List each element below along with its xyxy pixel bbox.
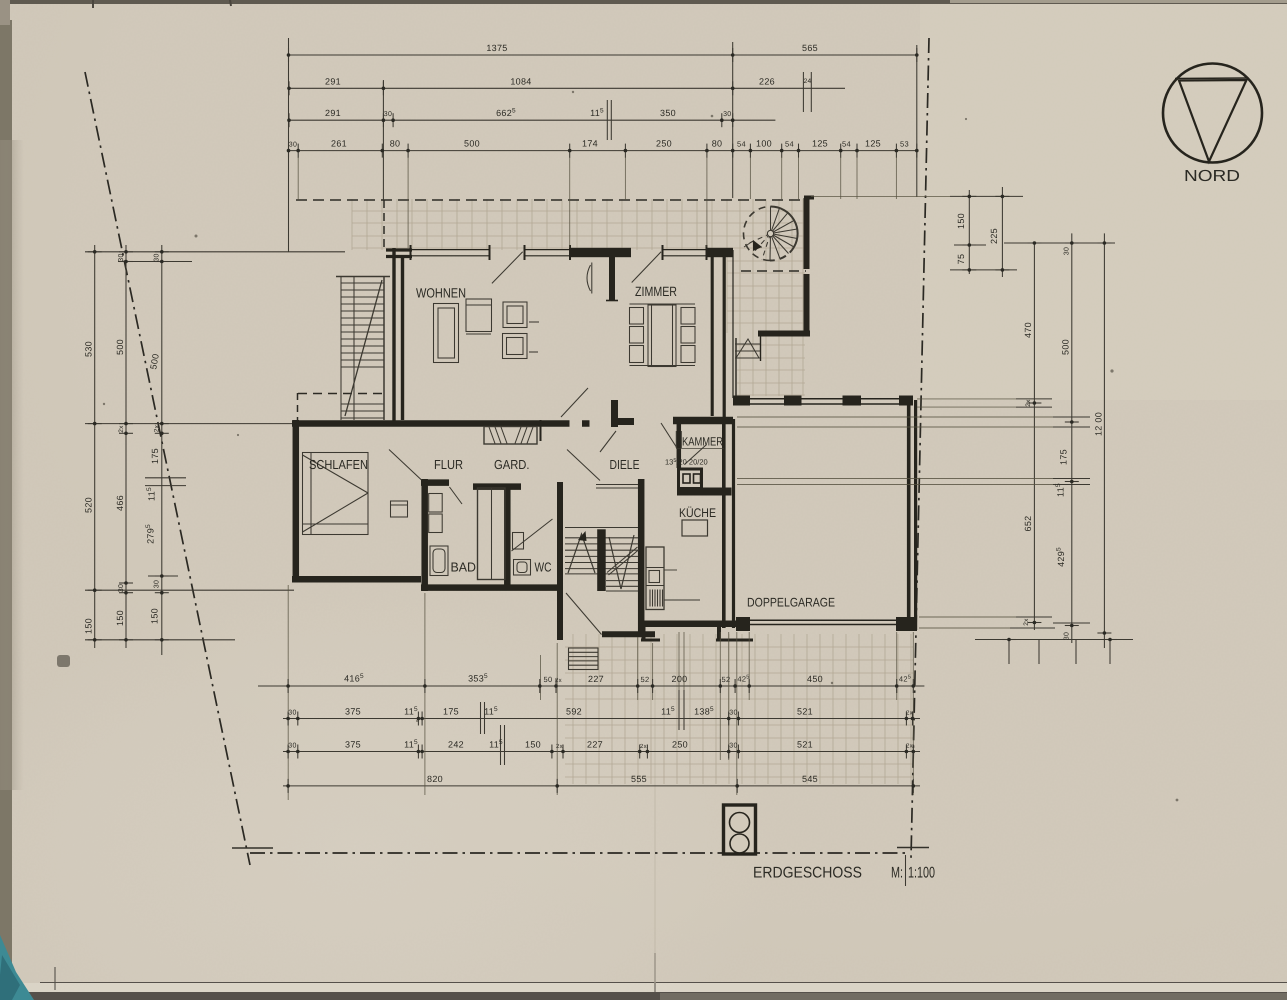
svg-text:1084: 1084 xyxy=(510,76,531,86)
svg-text:SCHLAFEN: SCHLAFEN xyxy=(309,457,368,472)
svg-text:500: 500 xyxy=(1061,339,1071,355)
svg-text:150: 150 xyxy=(150,608,160,624)
svg-text:WC: WC xyxy=(535,560,552,575)
svg-text:2x: 2x xyxy=(906,710,913,717)
svg-text:291: 291 xyxy=(325,76,341,86)
svg-text:2x: 2x xyxy=(154,424,161,432)
svg-text:24: 24 xyxy=(804,78,812,85)
svg-text:30: 30 xyxy=(154,580,161,588)
svg-text:30: 30 xyxy=(729,743,737,750)
svg-text:175: 175 xyxy=(1059,449,1069,465)
svg-text:500: 500 xyxy=(464,139,480,149)
svg-text:50: 50 xyxy=(544,675,553,684)
svg-text:30: 30 xyxy=(288,743,296,750)
svg-text:30: 30 xyxy=(723,111,731,118)
svg-text:12 00: 12 00 xyxy=(1093,412,1103,436)
svg-text:174: 174 xyxy=(582,139,598,149)
svg-text:545: 545 xyxy=(802,774,818,784)
svg-text:80: 80 xyxy=(390,139,401,149)
svg-text:75: 75 xyxy=(956,254,966,265)
svg-text:30: 30 xyxy=(118,584,125,592)
svg-text:242: 242 xyxy=(448,740,464,750)
svg-text:150: 150 xyxy=(956,213,966,229)
svg-text:30: 30 xyxy=(288,710,296,717)
svg-text:291: 291 xyxy=(325,108,341,118)
svg-text:521: 521 xyxy=(797,707,813,717)
svg-text:225: 225 xyxy=(989,228,999,244)
svg-text:53: 53 xyxy=(900,140,909,149)
svg-text:KÜCHE: KÜCHE xyxy=(679,506,716,520)
svg-text:150: 150 xyxy=(84,618,94,634)
svg-text:2x: 2x xyxy=(1023,618,1030,626)
svg-text:175: 175 xyxy=(443,707,459,717)
svg-text:52: 52 xyxy=(722,675,731,684)
svg-text:261: 261 xyxy=(331,139,347,149)
svg-text:652: 652 xyxy=(1023,516,1033,532)
svg-text:227: 227 xyxy=(587,740,603,750)
svg-text:WOHNEN: WOHNEN xyxy=(416,286,466,301)
svg-text:350: 350 xyxy=(660,108,676,118)
svg-text:592: 592 xyxy=(566,707,582,717)
svg-text:450: 450 xyxy=(807,674,823,684)
svg-text:250: 250 xyxy=(672,740,688,750)
svg-text:150: 150 xyxy=(525,740,541,750)
svg-text:FLUR: FLUR xyxy=(434,457,463,472)
svg-text:250: 250 xyxy=(656,139,672,149)
svg-text:1375: 1375 xyxy=(486,43,507,53)
svg-text:2x: 2x xyxy=(555,677,562,684)
svg-text:375: 375 xyxy=(345,740,361,750)
svg-text:30: 30 xyxy=(384,111,392,118)
svg-text:226: 226 xyxy=(759,76,775,86)
svg-text:2x: 2x xyxy=(118,425,125,433)
svg-text:2x: 2x xyxy=(1025,399,1032,407)
svg-text:125: 125 xyxy=(865,139,881,149)
svg-text:30: 30 xyxy=(154,253,161,261)
svg-text:530: 530 xyxy=(84,341,94,357)
svg-text:375: 375 xyxy=(345,707,361,717)
svg-text:52: 52 xyxy=(641,675,650,684)
svg-text:100: 100 xyxy=(756,139,772,149)
svg-text:470: 470 xyxy=(1023,322,1033,338)
svg-text:175: 175 xyxy=(150,448,160,464)
svg-text:M:: M: xyxy=(891,865,903,882)
svg-text:DIELE: DIELE xyxy=(610,457,640,472)
svg-text:520: 520 xyxy=(84,497,94,513)
svg-text:54: 54 xyxy=(737,140,746,149)
svg-text:30: 30 xyxy=(289,142,297,149)
svg-text:30: 30 xyxy=(118,253,125,261)
svg-text:150: 150 xyxy=(115,610,125,626)
svg-text:135/20 20/20: 135/20 20/20 xyxy=(665,458,708,467)
svg-text:30: 30 xyxy=(1064,247,1071,255)
svg-text:GARD.: GARD. xyxy=(494,457,530,472)
svg-text:54: 54 xyxy=(842,140,851,149)
svg-text:ERDGESCHOSS: ERDGESCHOSS xyxy=(753,865,862,882)
svg-text:ZIMMER: ZIMMER xyxy=(635,284,677,299)
svg-text:1:100: 1:100 xyxy=(908,865,935,882)
svg-text:125: 125 xyxy=(812,139,828,149)
svg-text:820: 820 xyxy=(427,774,443,784)
svg-text:NORD: NORD xyxy=(1184,168,1240,185)
svg-text:BAD: BAD xyxy=(451,560,477,575)
svg-text:30: 30 xyxy=(729,710,737,717)
svg-text:521: 521 xyxy=(797,740,813,750)
svg-text:565: 565 xyxy=(802,43,818,53)
svg-text:555: 555 xyxy=(631,774,647,784)
svg-text:500: 500 xyxy=(115,339,125,355)
svg-text:2x: 2x xyxy=(640,743,647,750)
svg-text:200: 200 xyxy=(672,674,688,684)
svg-text:2x: 2x xyxy=(556,743,563,750)
svg-text:227: 227 xyxy=(588,674,604,684)
svg-text:2x: 2x xyxy=(906,743,913,750)
svg-text:30: 30 xyxy=(1064,632,1071,640)
svg-text:466: 466 xyxy=(115,495,125,511)
svg-text:54: 54 xyxy=(785,140,794,149)
svg-text:80: 80 xyxy=(712,139,723,149)
svg-text:KAMMER: KAMMER xyxy=(682,435,723,449)
svg-text:DOPPELGARAGE: DOPPELGARAGE xyxy=(747,596,835,610)
